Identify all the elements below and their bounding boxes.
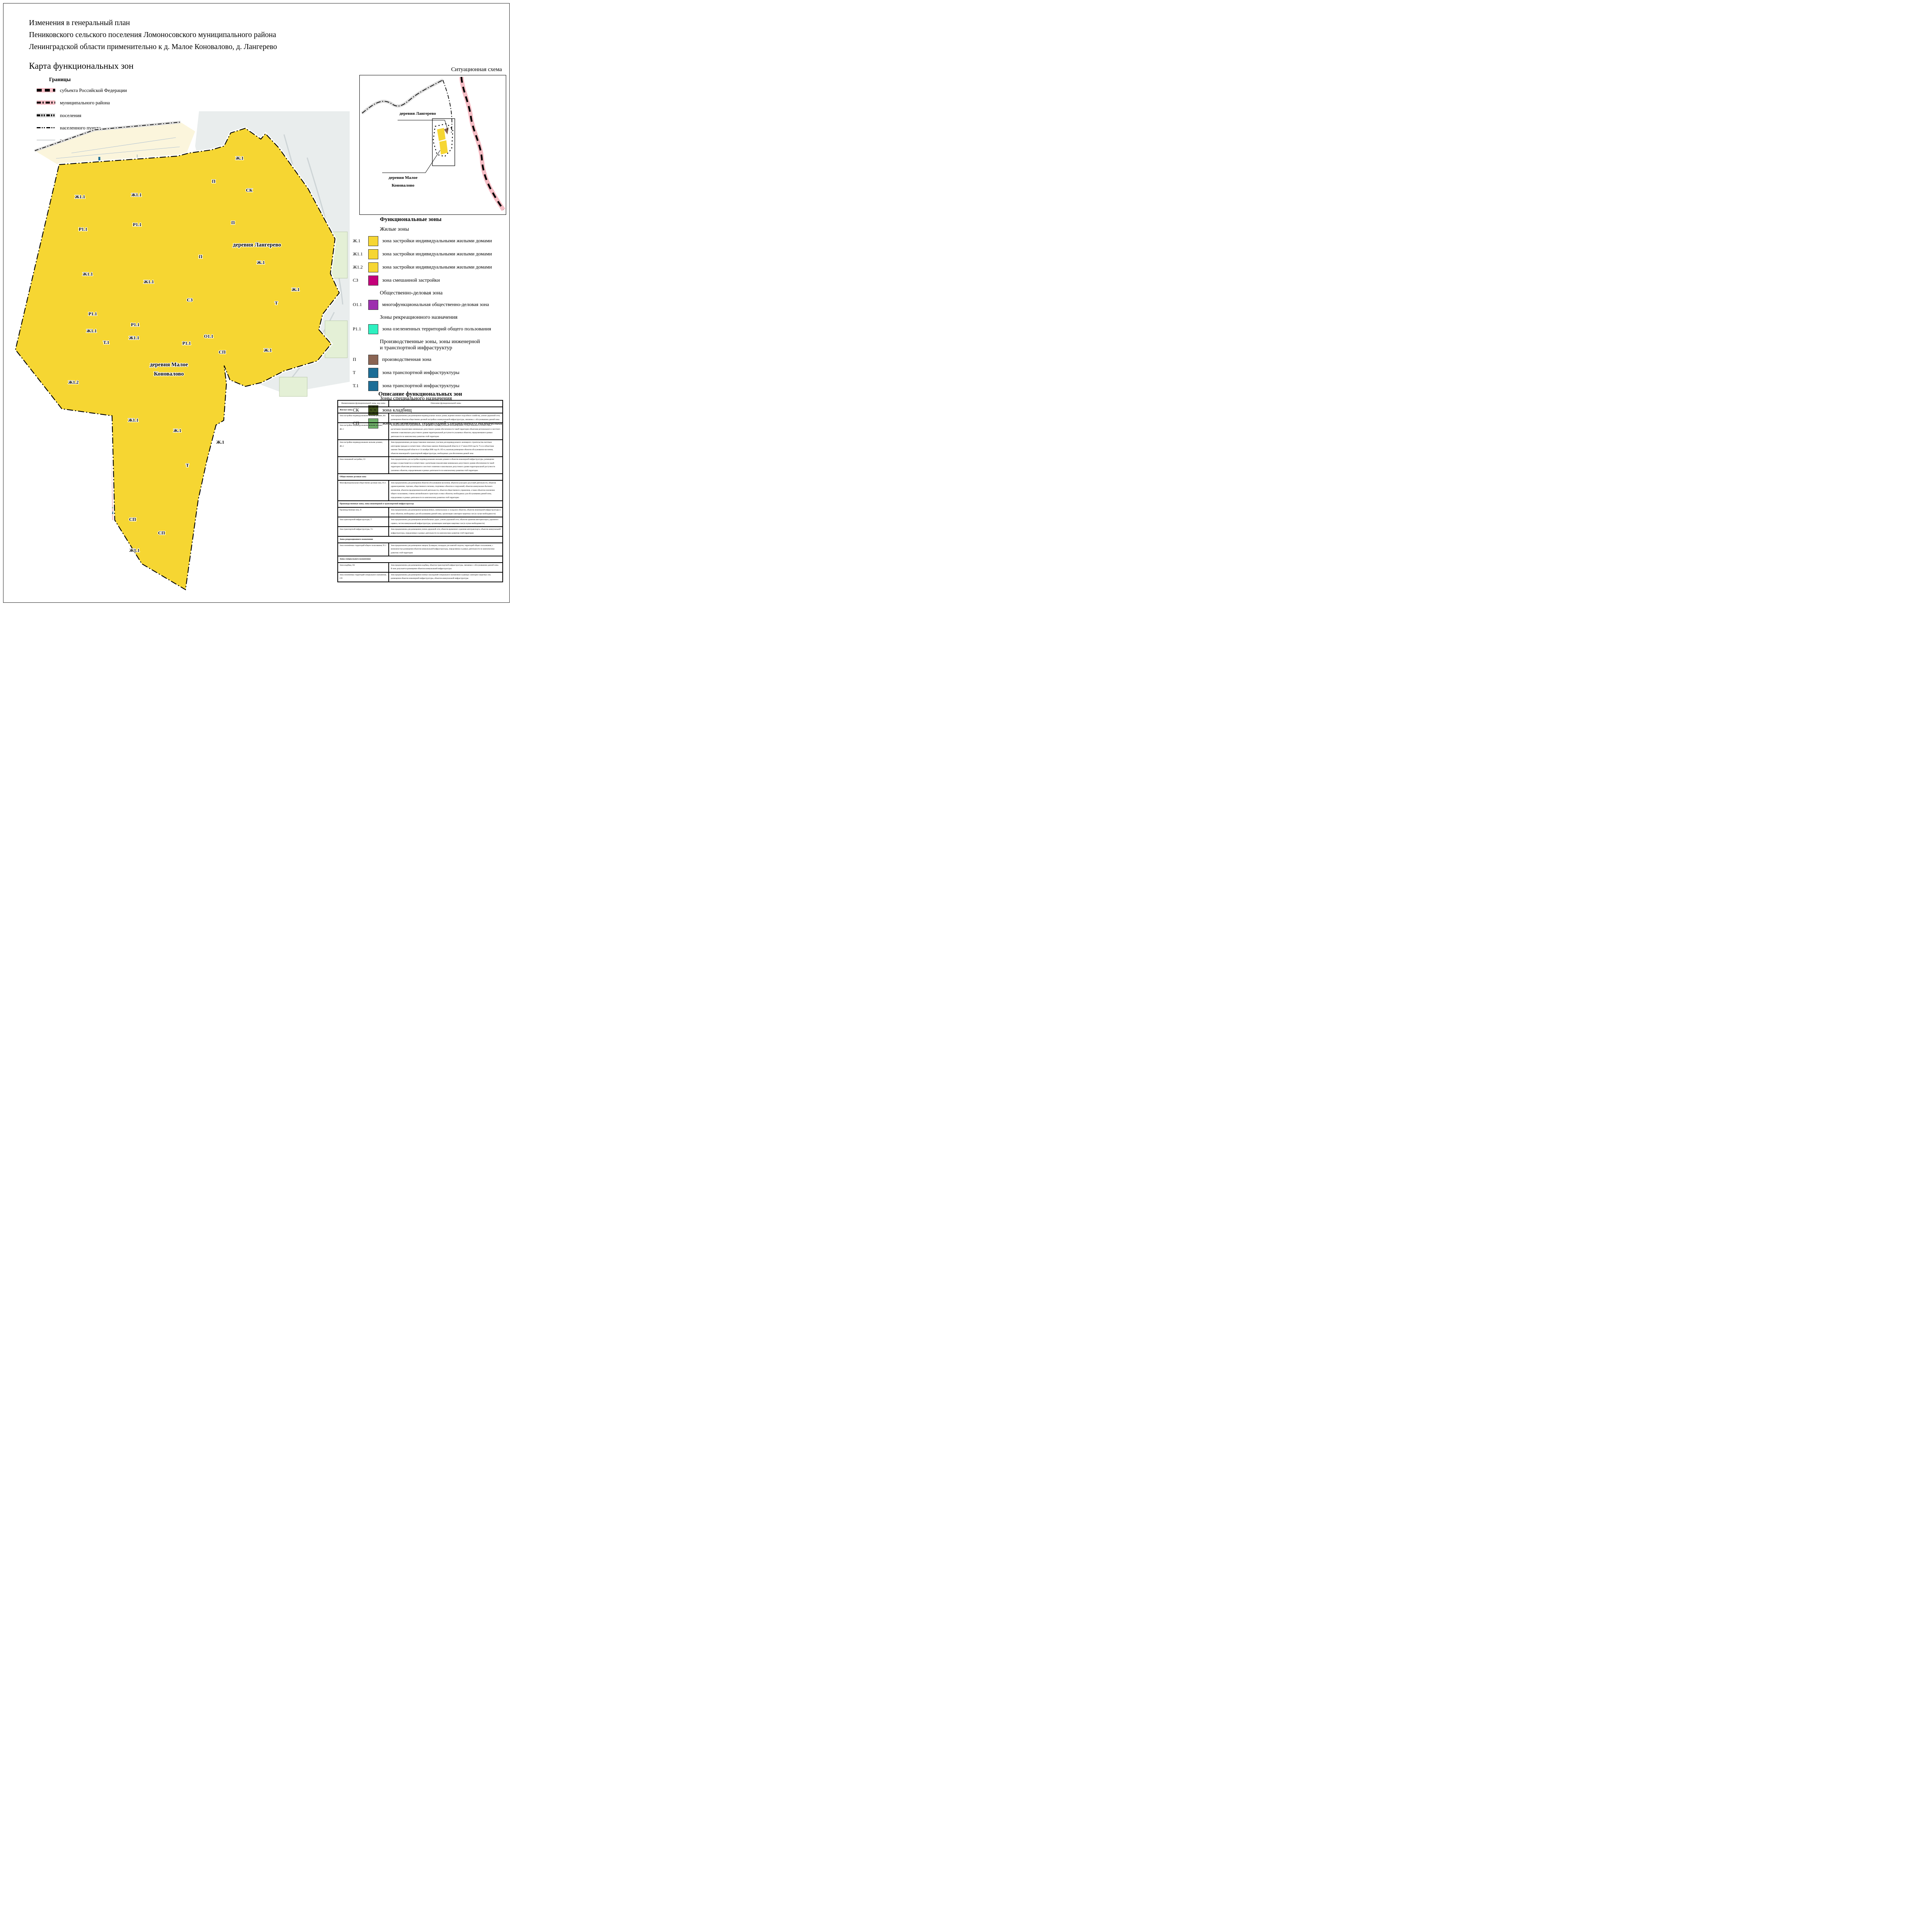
zone-code-label: Ж1.1 [129,335,139,340]
table-row: Производственная зона, ПЗона предназначе… [338,507,503,517]
title-line-1: Изменения в генеральный план [29,17,377,29]
general-plan-sheet: { "page": { "title_lines": [ "Изменения … [0,0,513,606]
zone-color-swatch [368,355,378,365]
zone-code-label: Ж1.1 [83,271,93,277]
borders-legend-heading: Границы [49,77,199,83]
zone-code: СЗ [353,277,366,283]
zone-color-swatch [368,236,378,246]
zone-legend-label: зона смешанной застройки [382,277,508,283]
border-legend-label: муниципального района [60,100,110,106]
zone-color-swatch [368,276,378,286]
table-header-row: Наименование функциональной зоны, код зо… [338,400,503,407]
zone-code-label: Ж.1 [216,439,224,445]
zones-legend-heading: Функциональные зоны [380,216,508,223]
zone-code-label: Ж.1 [292,287,300,292]
functional-zones-map: N N [14,111,350,605]
zone-legend-item: СЗзона смешанной застройки [353,274,508,287]
zone-code-label: П [199,254,202,259]
zone-code-label: Ж.1 [173,428,182,433]
table-row: Зона застройки индивидуальными жилыми до… [338,413,503,423]
zone-code-label: Ж.1 [257,260,265,265]
locality-border-line [15,128,339,590]
table-row: Зона застройки индивидуальными жилыми до… [338,440,503,457]
zone-group-heading: Общественно-деловая зона [380,290,508,296]
table-row: Зона транспортной инфраструктуры, Т.1Зон… [338,527,503,536]
zone-code-label: Т [186,463,189,468]
map-canvas: N N [14,111,350,605]
zone-code-label: Р1.1 [131,322,139,327]
zone-color-swatch [368,262,378,272]
table-section-cell: Производственные зоны, зоны инженерной и… [338,501,503,507]
zone-legend-label: зона застройки индивидуальными жилыми до… [382,238,508,244]
zone-color-swatch [368,324,378,334]
zone-description-cell: Зона предназначена для размещения улично… [389,527,503,536]
zone-code-label: П [212,179,216,184]
zone-legend-item: Тзона транспортной инфраструктуры [353,366,508,379]
table-section-cell: Зоны специального назначения [338,556,503,563]
schema-settlement-label: деревня Лангерево [400,111,436,116]
zone-description-cell: Зона предназначена для размещения промыш… [389,507,503,517]
border-legend-item: субъекта Российской Федерации [37,87,199,94]
zone-code-label: О1.1 [204,333,213,339]
situational-schema-title: Ситуационная схема [451,66,502,73]
table-row: Зона озеленённых территорий общего польз… [338,543,503,556]
situational-schema-labels: деревня Лангереводеревня МалоеКоновалово [389,111,436,188]
zone-code-label: СП [158,530,165,536]
table-section-row: Зоны рекреационного назначения [338,536,503,543]
zones-description: Описание функциональных зон Наименование… [337,391,503,582]
border-legend-item: муниципального района [37,100,199,106]
village-area-2 [439,140,448,155]
table-section-cell: Жилые зоны [338,407,503,413]
table-section-cell: Зоны рекреационного назначения [338,536,503,543]
zone-code-label: Ж1.2 [68,379,79,385]
zone-color-swatch [368,249,378,259]
zone-code-label: П [231,220,235,225]
zone-legend-label: зона застройки индивидуальными жилыми до… [382,264,508,270]
zone-code: Ж1.1 [353,251,366,257]
zone-legend-label: зона транспортной инфраструктуры [382,370,508,376]
zone-code-label: Ж1.1 [87,328,97,333]
zone-group-heading: Производственные зоны, зоны инженерной и… [380,339,508,351]
zone-legend-item: Т.1зона транспортной инфраструктуры [353,379,508,392]
zone-code: П [353,357,366,362]
zone-code-label: Ж1.1 [129,548,140,553]
zone-code: О1.1 [353,302,366,308]
zone-code-label: Т [275,300,278,306]
zone-description-cell: Зона предназначена для размещения зелены… [389,572,503,582]
zone-code-label: Ж.1 [236,155,244,161]
zone-code-label: Ж1.1 [131,192,142,197]
situational-schema-box: деревня Лангереводеревня МалоеКоновалово [359,75,506,215]
zone-code: Т [353,370,366,376]
settlement-name-label: Коновалово [154,371,184,377]
description-heading: Описание функциональных зон [337,391,503,398]
zone-description-cell: Зона предназначена для размещения индиви… [389,413,503,423]
zone-color-swatch [368,381,378,391]
map-title: Карта функциональных зон [29,61,134,71]
zone-code-label: Ж1.1 [128,417,139,423]
table-section-row: Жилые зоны [338,407,503,413]
table-row: Зона транспортной инфраструктуры, ТЗона … [338,517,503,527]
zone-code-label: СК [246,187,253,193]
zone-code: Ж1.2 [353,264,366,270]
zone-legend-label: зона озелененных территорий общего польз… [382,326,508,332]
zone-description-cell: Зона предназначена для размещения скверо… [389,543,503,556]
settlement-border-line-2 [443,80,452,133]
zone-legend-item: Ж1.1зона застройки индивидуальными жилым… [353,248,508,260]
zone-legend-label: зона транспортной инфраструктуры [382,383,508,389]
table-row: Зона смешанной застройки, СЗЗона предназ… [338,457,503,474]
zone-code-label: СП [219,349,226,355]
settlement-name-label: деревня Малое [150,362,188,368]
zone-legend-label: многофункциональная общественно-деловая … [382,302,508,308]
zone-code-label: Ж1.1 [75,194,85,199]
table-row: Многофункциональная общественно-деловая … [338,480,503,501]
zone-color-swatch [368,300,378,310]
border-legend-label: субъекта Российской Федерации [60,87,127,94]
zone-code-label: Т.1 [103,340,109,345]
zone-description-cell: Зона предназначена для застройки индивид… [389,457,503,474]
leader-line-langerevo [398,120,448,130]
zone-code-label: Р1.1 [79,226,87,232]
zone-code-label: Р1.1 [133,222,141,227]
zone-legend-item: Ппроизводственная зона [353,353,508,366]
zone-legend-item: Ж.1зона застройки индивидуальными жилыми… [353,235,508,247]
zone-group-heading: Жилые зоны [380,226,508,233]
zone-legend-label: производственная зона [382,357,508,362]
title-line-3: Ленинградской области применительно к д.… [29,41,377,53]
zone-code-label: Ж1.1 [144,279,154,284]
zone-code: Р1.1 [353,326,366,332]
zone-code-label: Р1.1 [88,311,97,316]
zone-description-cell: Зона предназначена для размещения кладби… [389,563,503,572]
zone-code-label: СЗ [187,297,193,303]
table-row: Зона кладбищ, СКЗона предназначена для р… [338,563,503,572]
zone-description-cell: Зона предназначенная для предоставления … [389,440,503,457]
zone-group-heading: Зоны рекреационного назначения [380,315,508,321]
situational-schema-map: деревня Лангереводеревня МалоеКоновалово [360,75,506,214]
zone-description-cell: Функциональная зона предназначена для за… [389,423,503,440]
zone-legend-item: Р1.1зона озелененных территорий общего п… [353,323,508,335]
zone-description-cell: Зона предназначена для размещения автомо… [389,517,503,527]
table-section-row: Общественно-деловая зона [338,474,503,480]
zone-legend-label: зона застройки индивидуальными жилыми до… [382,251,508,257]
table-section-row: Зоны специального назначения [338,556,503,563]
title-line-2: Пениковского сельского поселения Ломонос… [29,29,377,41]
district-border-swatch [37,100,55,105]
zone-code: Т.1 [353,383,366,389]
schema-settlement-label: деревня Малое [389,175,418,180]
subject-border-swatch [37,88,55,92]
table-row: Зона озелененных территорий специального… [338,572,503,582]
zone-code-label: СП [129,517,136,522]
subject-border-band [461,77,503,210]
zone-description-cell: Зона предназначена для размещения объект… [389,480,503,501]
zone-legend-item: О1.1многофункциональная общественно-дело… [353,298,508,311]
table-section-row: Производственные зоны, зоны инженерной и… [338,501,503,507]
table-header-cell: Описание функциональной зоны [389,400,503,407]
village-area-1 [437,128,446,141]
settlement-name-label: деревня Лангерево [233,242,281,248]
zone-code: Ж.1 [353,238,366,244]
zone-code-label: Р1.1 [182,340,191,346]
table-row: Зона застройки индивидуальными жилыми до… [338,423,503,440]
zone-color-swatch [368,368,378,378]
document-title: Изменения в генеральный план Пениковског… [29,17,377,53]
schema-settlement-label: Коновалово [392,183,415,188]
table-section-cell: Общественно-деловая зона [338,474,503,480]
zone-legend-item: Ж1.2зона застройки индивидуальными жилым… [353,261,508,274]
description-table: Наименование функциональной зоны, код зо… [337,400,503,582]
settlement-border-band [362,80,443,113]
zone-code-label: Ж.1 [264,347,272,353]
leader-line-konovalovo [382,150,440,173]
